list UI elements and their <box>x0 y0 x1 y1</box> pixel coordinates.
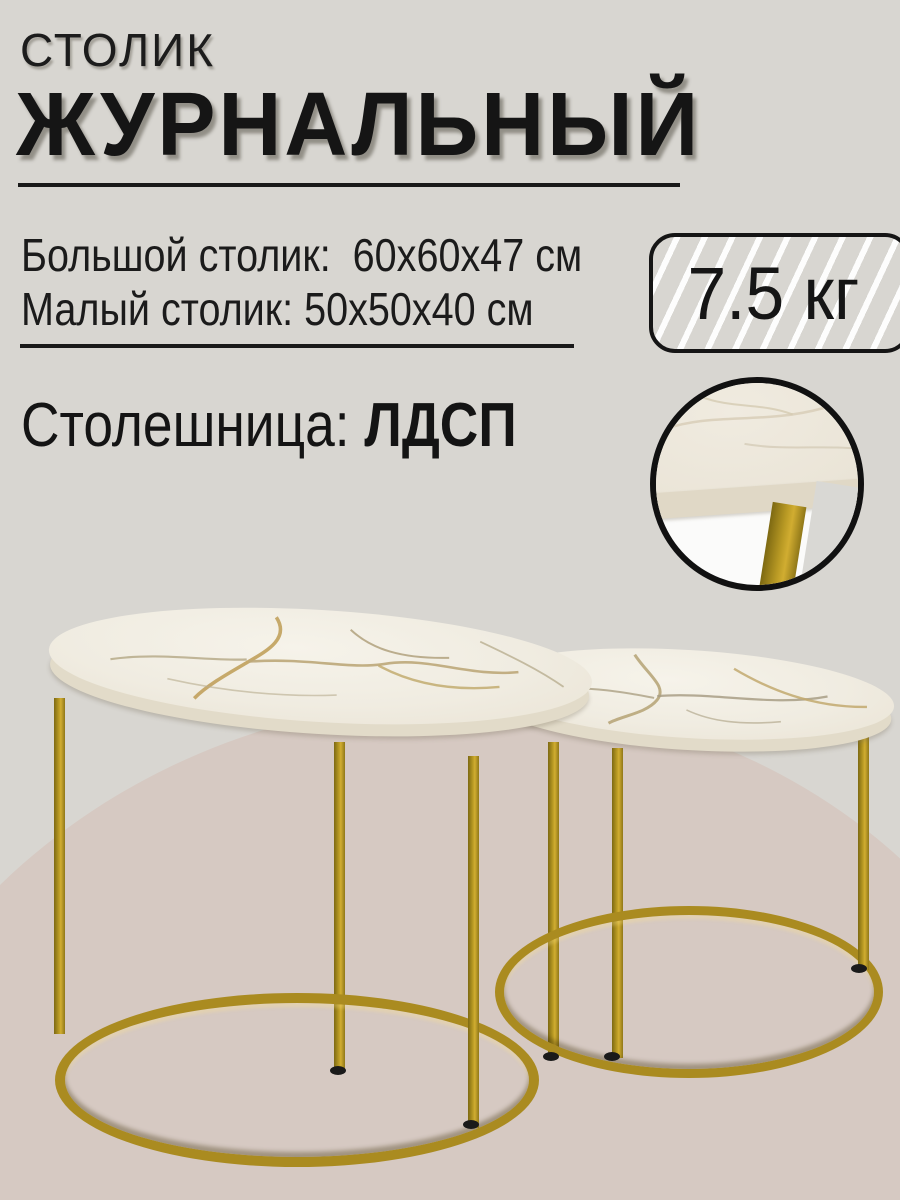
marble-veins-big <box>46 594 596 739</box>
big-table-foot-back <box>330 1066 346 1075</box>
material-closeup-circle <box>650 377 864 591</box>
big-table-leg-left <box>54 698 65 1034</box>
small-table-leg-right <box>858 730 869 970</box>
title-underline <box>18 183 680 187</box>
closeup-gold-leg <box>758 502 807 591</box>
material-line: Столешница: ЛДСП <box>21 392 517 460</box>
page-title-eyebrow: СТОЛИК <box>20 27 215 73</box>
big-table-foot-right <box>463 1120 479 1129</box>
big-table-leg-right <box>468 756 479 1128</box>
small-table-foot-right <box>851 964 867 973</box>
material-value: ЛДСП <box>364 391 516 460</box>
spec-line-big-table: Большой столик: 60х60х47 см <box>21 230 582 281</box>
specs-underline <box>20 344 574 348</box>
weight-badge-label: 7.5 кг <box>687 251 859 336</box>
product-card: СТОЛИК ЖУРНАЛЬНЫЙ Большой столик: 60х60х… <box>0 0 900 1200</box>
material-label: Столешница: <box>21 391 364 460</box>
page-title: ЖУРНАЛЬНЫЙ <box>16 80 701 170</box>
big-table-base-ring <box>55 993 539 1167</box>
big-tabletop <box>45 594 596 753</box>
small-table-foot-left <box>543 1052 559 1061</box>
spec-line-small-table: Малый столик: 50х50х40 см <box>21 284 534 335</box>
small-table-foot-back <box>604 1052 620 1061</box>
weight-badge: 7.5 кг <box>649 233 900 353</box>
big-tabletop-surface <box>46 594 596 739</box>
